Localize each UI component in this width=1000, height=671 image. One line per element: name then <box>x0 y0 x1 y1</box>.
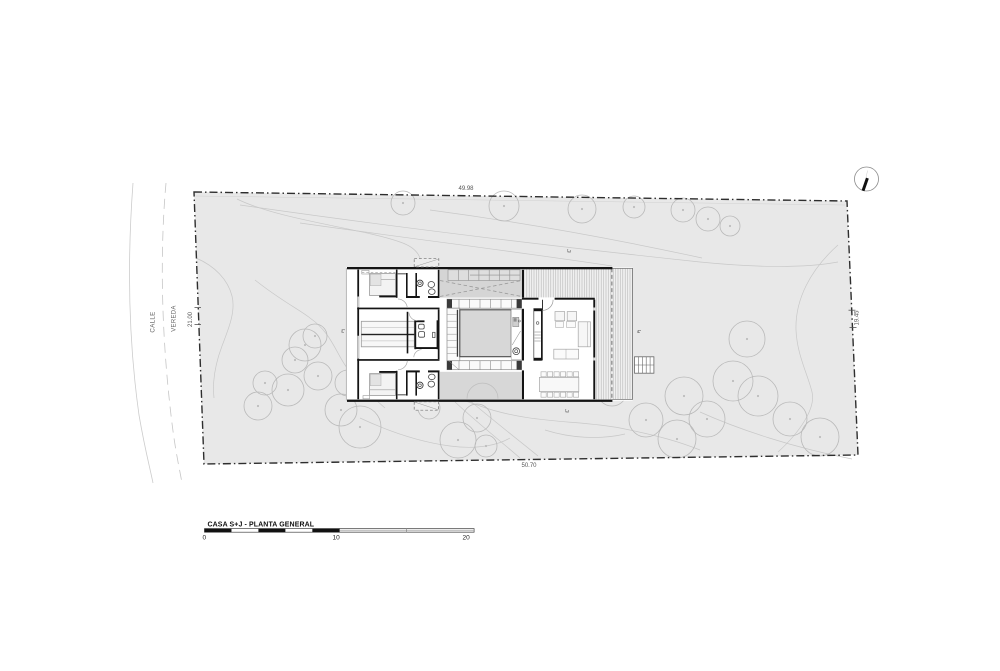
svg-text:Pj: Pj <box>567 249 571 254</box>
svg-text:CASA S+J - PLANTA GENERAL: CASA S+J - PLANTA GENERAL <box>208 522 315 529</box>
svg-text:20: 20 <box>463 535 471 542</box>
svg-text:CALLE: CALLE <box>150 311 157 332</box>
svg-text:Pj: Pj <box>565 409 569 414</box>
svg-text:Pj: Pj <box>340 329 345 333</box>
svg-text:21.00: 21.00 <box>188 311 194 327</box>
svg-text:10: 10 <box>333 535 341 542</box>
svg-text:VEREDA: VEREDA <box>172 305 178 331</box>
svg-text:Pj: Pj <box>636 330 641 334</box>
svg-text:19.45: 19.45 <box>855 310 861 326</box>
svg-text:0: 0 <box>203 535 207 542</box>
svg-text:49.98: 49.98 <box>458 186 474 192</box>
svg-text:50.70: 50.70 <box>521 463 537 469</box>
